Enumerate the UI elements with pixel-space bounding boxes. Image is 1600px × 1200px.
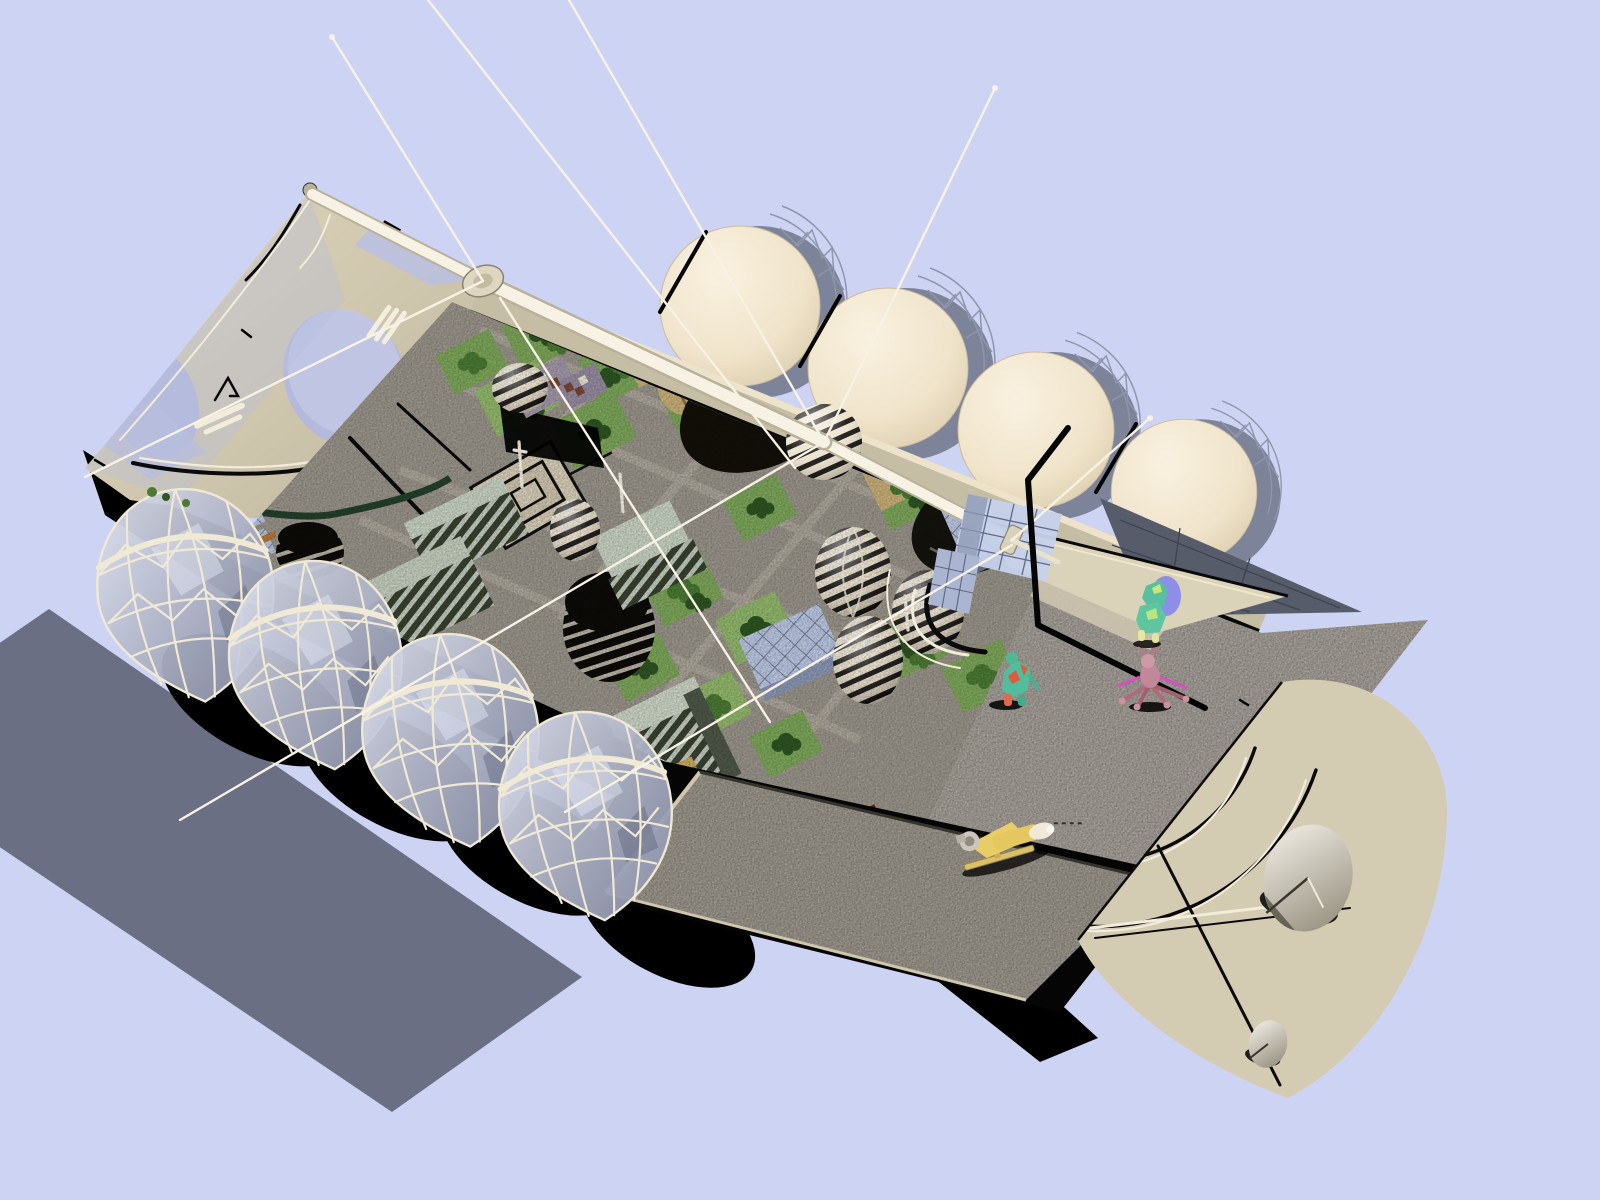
rendered-scene: const data = JSON.parse(document.getElem…: [0, 0, 1600, 1200]
